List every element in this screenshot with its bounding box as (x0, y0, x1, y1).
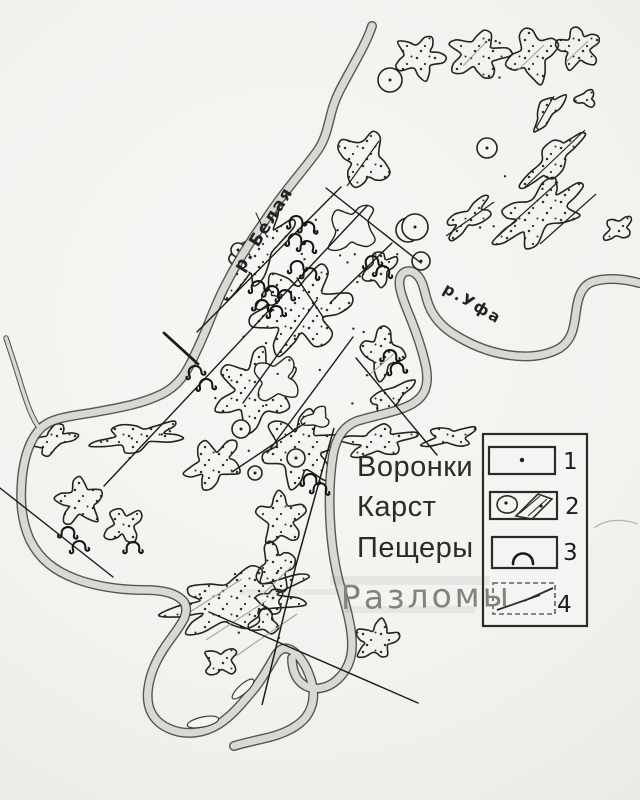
sinkhole-dot (498, 76, 500, 78)
sinkhole-dot (352, 328, 354, 330)
label-faults: Разломы (340, 575, 512, 617)
sinkhole-dot (240, 428, 243, 431)
sinkhole-dot (265, 404, 267, 406)
legend-item-number: 1 (563, 449, 578, 475)
sinkhole-dot (234, 573, 236, 575)
karst-area-blob (256, 490, 306, 543)
sinkhole-dot (389, 341, 391, 343)
cave-entrance-icon (297, 240, 318, 254)
sinkhole-dot (199, 593, 201, 595)
sinkhole-dot (356, 281, 358, 283)
sinkhole-dot (131, 437, 133, 439)
karst-map: 1 2 3 4 Воронки Карст Пещеры Разломы р. … (0, 0, 640, 800)
sinkhole-dot (363, 331, 365, 333)
sinkhole-dot (336, 229, 338, 231)
sinkhole-dot (499, 42, 501, 44)
sinkhole-dot (504, 175, 506, 177)
sinkhole-dot (272, 618, 274, 620)
label-karst: Карст (357, 491, 436, 523)
karst-area-blob (396, 36, 446, 81)
sinkhole-dot (479, 226, 481, 228)
cave-entrance-icon (196, 378, 216, 391)
sinkhole-dot (376, 407, 378, 409)
sinkhole-dot (389, 79, 392, 82)
karst-window (328, 205, 375, 250)
sinkhole-dot (495, 40, 497, 42)
sinkhole-dot (294, 335, 296, 337)
karst-area-blob (89, 421, 183, 453)
label-caves: Пещеры (357, 532, 474, 564)
sinkhole-dot (414, 226, 417, 229)
sinkhole-dot (161, 433, 163, 435)
sinkhole-dot (486, 147, 489, 150)
sinkhole-dot (238, 632, 240, 634)
sinkhole-dot (303, 258, 305, 260)
karst-area-blob (421, 427, 476, 447)
sinkhole-dot (112, 427, 114, 429)
sinkhole-dot (277, 373, 279, 375)
karst-area-blob (604, 216, 632, 240)
pencil-smudge (594, 521, 638, 528)
cave-entrance-icon (69, 540, 90, 554)
sinkhole-dot (265, 342, 267, 344)
label-sinkholes: Воронки (357, 451, 473, 483)
rivers-layer (6, 26, 639, 746)
sinkhole-dot (214, 397, 216, 399)
sinkhole-dot (263, 571, 265, 573)
legend-item-number: 3 (563, 540, 578, 566)
scanned-karst-map-page: 1 2 3 4 Воронки Карст Пещеры Разломы р. … (0, 0, 640, 800)
label-river-ufa: р.Уфа (440, 280, 505, 328)
sinkhole-dot (169, 430, 171, 432)
sinkhole-dot (351, 402, 353, 404)
karst-area-blob (447, 195, 491, 240)
highlight-smudge (240, 589, 340, 595)
sinkhole-dot (346, 261, 348, 263)
sinkhole-dot (106, 440, 108, 442)
sinkhole-dot (301, 253, 303, 255)
river-belaya (21, 26, 372, 746)
sinkhole-dot (248, 450, 250, 452)
sinkhole-dot (315, 219, 317, 221)
legend-item-number: 2 (565, 494, 580, 520)
karst-dot (504, 501, 507, 504)
karst-area-blob (449, 30, 512, 78)
sinkhole-dot (493, 225, 495, 227)
legend-item-number: 4 (557, 592, 572, 618)
sinkhole-dot (366, 374, 368, 376)
sinkhole-dot (319, 369, 321, 371)
sinkhole-dot (288, 359, 290, 361)
karst-area-blob (574, 90, 595, 108)
karst-area-blob (205, 649, 237, 675)
sinkhole-dot (228, 376, 230, 378)
sinkhole-dot (569, 140, 571, 142)
sinkhole-dot (295, 457, 298, 460)
sinkhole-dot-icon (520, 458, 524, 462)
karst-area-blob (338, 131, 390, 187)
karst-area-blob (356, 618, 399, 657)
sinkhole-dot (339, 254, 341, 256)
karst-window (301, 406, 329, 427)
karst-area-blob (492, 177, 583, 248)
karst-area-blob (183, 440, 240, 490)
karst-area-blob (534, 95, 567, 132)
sinkhole-dot (354, 253, 356, 255)
cave-entrance-icon (123, 542, 143, 553)
sinkhole-dot (277, 570, 279, 572)
karst-area-blob (104, 509, 142, 543)
sinkhole-dot (541, 188, 543, 190)
sinkhole-dot (396, 253, 398, 255)
karst-area-blob (556, 27, 600, 70)
karst-area-blob (54, 476, 102, 524)
karst-dot (539, 504, 542, 507)
cave-entrance-icon (58, 526, 78, 539)
sinkhole-dot (254, 472, 257, 475)
sinkhole-dot (257, 394, 259, 396)
sinkhole-dot (574, 100, 576, 102)
